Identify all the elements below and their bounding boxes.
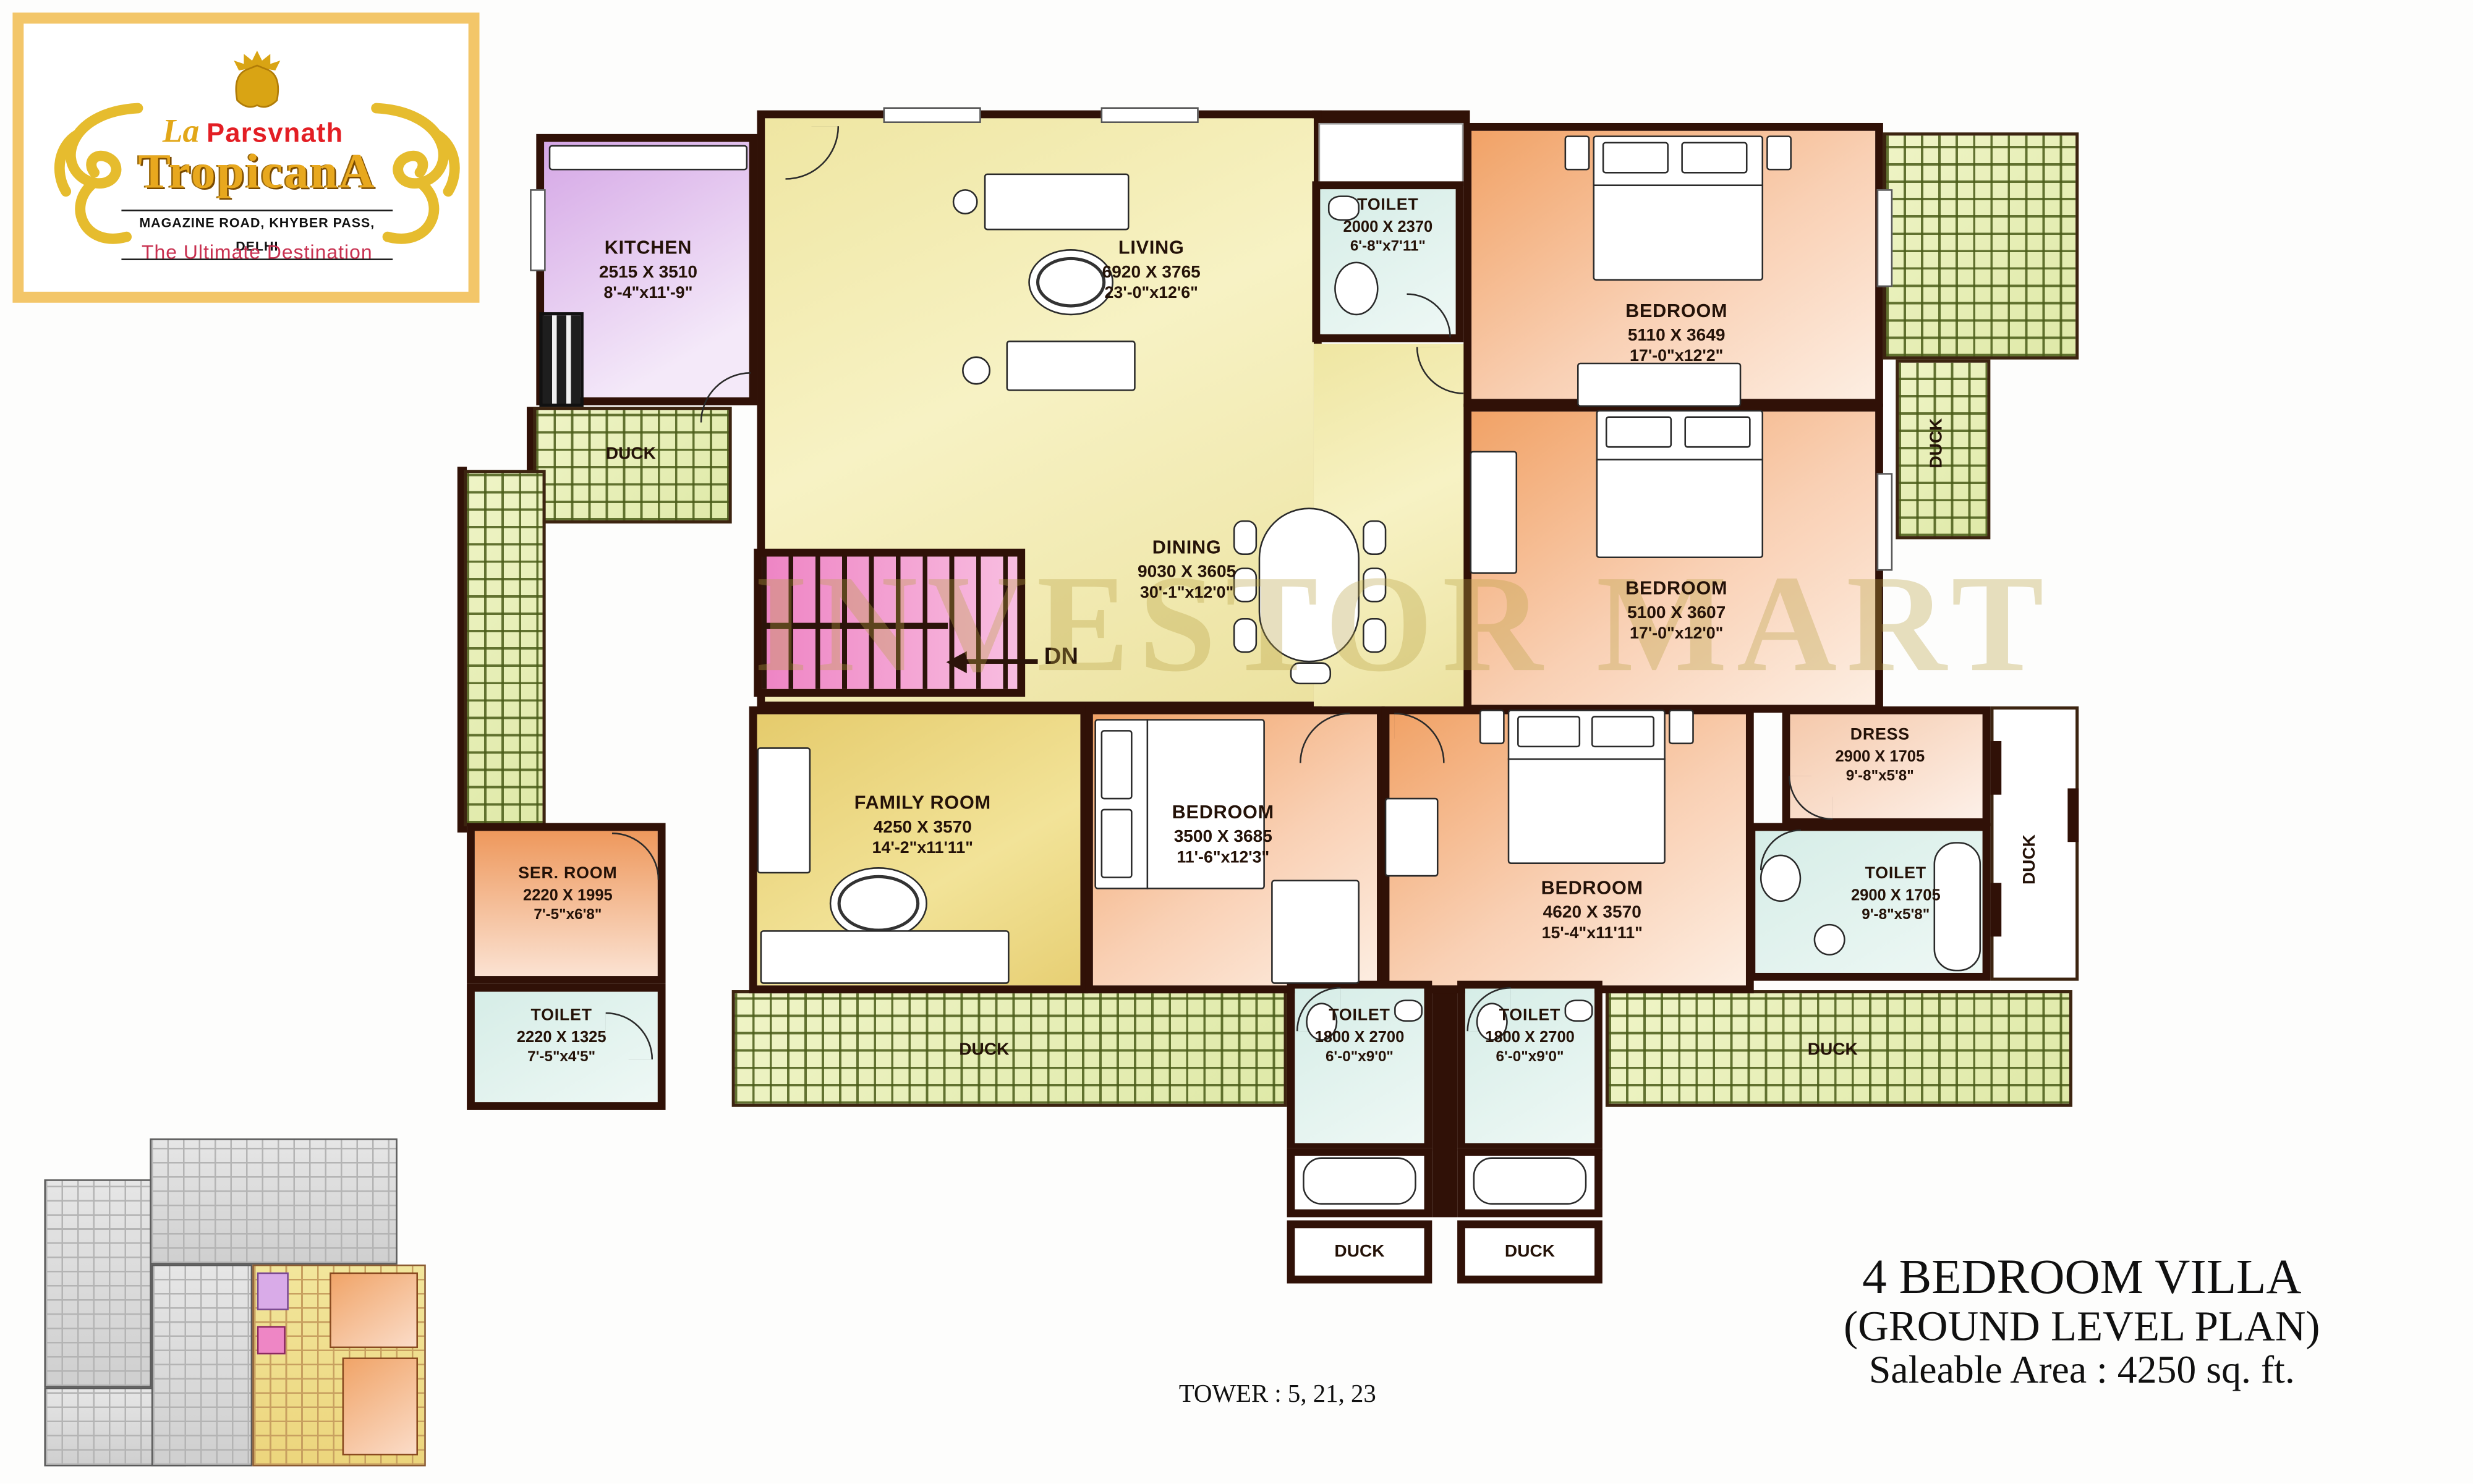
bathtub-icon: [1303, 1157, 1416, 1205]
window: [530, 189, 546, 271]
duct-label: DUCK: [1457, 1242, 1603, 1261]
mini-stairs: [257, 1326, 286, 1354]
duct-label: DUCK: [1776, 1041, 1889, 1060]
window: [1101, 107, 1199, 123]
plan-subtitle: (GROUND LEVEL PLAN): [1832, 1302, 2331, 1351]
label-family-room: FAMILY ROOM 4250 X 3570 14'-2"x11'11": [812, 792, 1033, 860]
nightstand-icon: [1479, 710, 1505, 744]
label-bedroom-2: BEDROOM 5100 X 3607 17'-0"x12'0": [1574, 577, 1779, 646]
brand-name: TropicanA: [23, 143, 490, 200]
bathtub-icon: [1473, 1157, 1587, 1205]
coffee-table-icon: [830, 867, 927, 939]
wardrobe-icon: [1271, 880, 1360, 983]
wc-icon: [1334, 261, 1378, 315]
label-toilet-top: TOILET 2000 X 2370 6'-8"x7'11": [1316, 195, 1461, 257]
side-table-icon: [962, 357, 990, 385]
mini-cluster-plan: [35, 1122, 437, 1477]
mini-room: [343, 1357, 418, 1455]
foyer: [1319, 123, 1464, 186]
pillow-icon: [1681, 142, 1747, 174]
label-toilet-left: TOILET 2220 X 1325 7'-5"x4'5": [473, 1006, 650, 1067]
window: [883, 107, 981, 123]
bed-icon: [1508, 710, 1666, 864]
duct-area-kitchen: [533, 407, 731, 524]
brand-tagline: The Ultimate Destination: [134, 241, 380, 263]
label-dining: DINING 9030 X 3605 30'-1"x12'0": [1088, 536, 1285, 604]
nightstand-icon: [1669, 710, 1694, 744]
mini-block: [44, 1179, 151, 1388]
sofa-icon: [1007, 341, 1136, 391]
saleable-area: Saleable Area : 4250 sq. ft.: [1832, 1350, 2331, 1394]
pillow-icon: [1517, 716, 1580, 747]
mini-kitchen: [257, 1273, 289, 1310]
mini-room: [330, 1273, 418, 1348]
bed-icon: [1596, 410, 1763, 558]
label-living: LIVING 6920 X 3765 23'-0"x12'6": [1041, 237, 1262, 305]
tower-note: TOWER : 5, 21, 23: [1088, 1381, 1466, 1410]
nightstand-icon: [1565, 135, 1590, 170]
wc-icon: [1760, 855, 1801, 902]
plan-title: 4 BEDROOM VILLA: [1832, 1249, 2331, 1305]
mini-highlighted-unit: [252, 1265, 426, 1467]
sofa-icon: [760, 930, 1010, 984]
pillow-icon: [1603, 142, 1669, 174]
label-kitchen: KITCHEN 2515 X 3510 8'-4"x11'-9": [552, 237, 744, 305]
wardrobe-icon: [1577, 363, 1741, 407]
balcony-top-right: [1883, 132, 2079, 359]
pillow-icon: [1684, 416, 1750, 447]
balcony-strip-left: [464, 470, 546, 826]
nightstand-icon: [1766, 135, 1792, 170]
wall-segment: [1432, 981, 1457, 1218]
window: [1877, 189, 1893, 287]
label-toilet-b2: TOILET 1800 X 2700 6'-0"x9'0": [1460, 1006, 1599, 1067]
brand-logo: La Parsvnath TropicanA MAGAZINE ROAD, KH…: [12, 12, 479, 302]
watermark: INVESTOR MART: [754, 546, 2053, 705]
pillow-icon: [1606, 416, 1672, 447]
mini-block: [150, 1138, 398, 1265]
crest-icon: [224, 46, 290, 115]
duct-label-vertical: DUCK: [1927, 388, 1946, 499]
wall-segment: [2067, 789, 2079, 842]
label-dress: DRESS 2900 X 1705 9'-8"x5'8": [1792, 725, 1969, 786]
pillow-icon: [1591, 716, 1654, 747]
side-table-icon: [953, 189, 978, 214]
floor-plan-page: La Parsvnath TropicanA MAGAZINE ROAD, KH…: [0, 0, 2473, 1483]
wall-segment: [1990, 883, 2001, 937]
label-bedroom-3: BEDROOM 3500 X 3685 11'-6"x12'3": [1117, 801, 1329, 870]
duct-label-vertical: DUCK: [2020, 804, 2040, 915]
duct-label: DUCK: [581, 444, 681, 464]
refrigerator-icon: [539, 312, 583, 407]
pillow-icon: [1101, 730, 1133, 799]
desk-icon: [1385, 798, 1439, 877]
label-bedroom-4: BEDROOM 4620 X 3570 15'-4"x11'11": [1486, 876, 1698, 945]
label-bedroom-1: BEDROOM 5110 X 3649 17'-0"x12'2": [1574, 300, 1779, 368]
sink-icon: [1814, 924, 1845, 956]
mini-block: [151, 1265, 252, 1467]
wall-segment: [1990, 741, 2001, 795]
sofa-icon: [984, 174, 1130, 231]
duct-label: DUCK: [1287, 1242, 1432, 1261]
label-toilet-b1: TOILET 1800 X 2700 6'-0"x9'0": [1290, 1006, 1429, 1067]
label-ser-room: SER. ROOM 2220 X 1995 7'-5"x6'8": [483, 864, 653, 925]
kitchen-counter-icon: [549, 145, 747, 171]
armchair-icon: [757, 747, 811, 873]
bed-icon: [1593, 135, 1764, 281]
label-toilet-right: TOILET 2900 X 1705 9'-8"x5'8": [1807, 864, 1984, 925]
duct-label: DUCK: [927, 1041, 1041, 1060]
